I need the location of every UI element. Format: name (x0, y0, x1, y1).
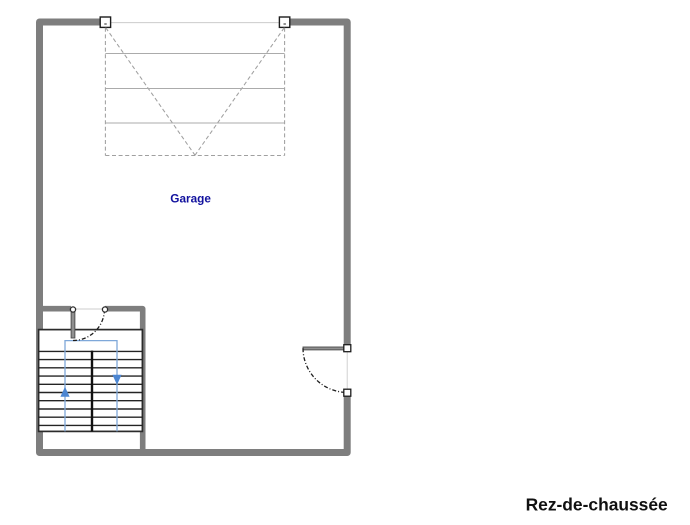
svg-text:Garage: Garage (170, 191, 211, 205)
svg-text:Rez-de-chaussée: Rez-de-chaussée (526, 494, 668, 514)
